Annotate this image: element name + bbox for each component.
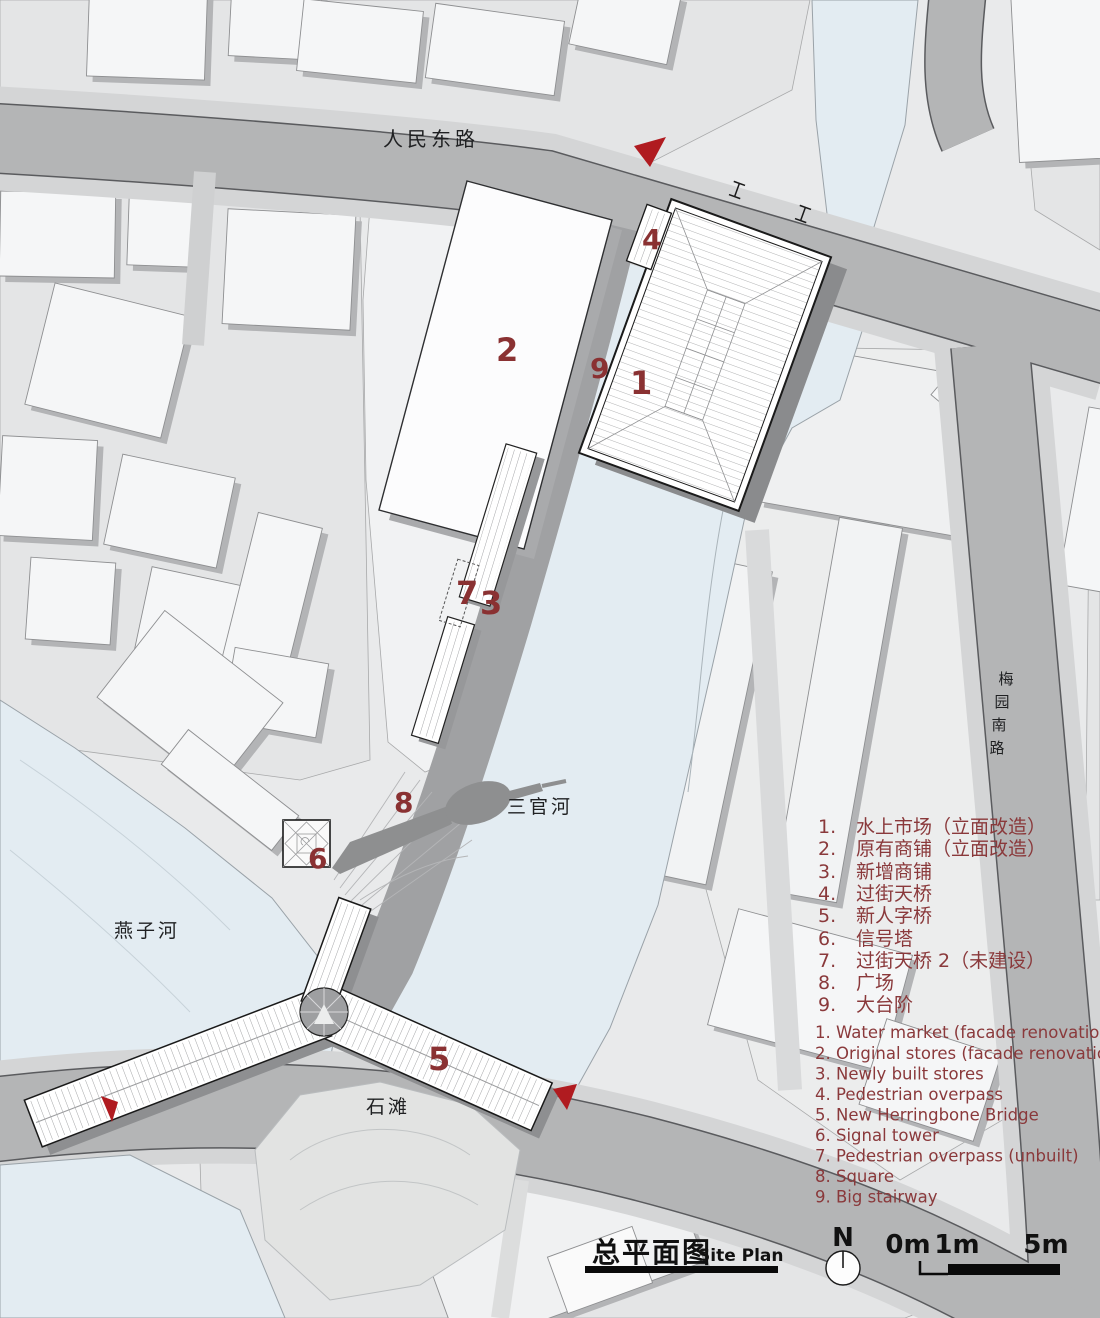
legend-en-item-1: 1. Water market (facade renovation) [815, 1023, 1100, 1042]
label-sanguan-river: 三官河 [507, 796, 573, 818]
marker-9: 9 [590, 352, 609, 385]
scale-1m: 1m [934, 1230, 979, 1260]
label-shitan: 石滩 [366, 1096, 410, 1118]
label-renmin-east-road: 人民东路 [383, 127, 479, 151]
legend-zh-num-5: 5. [818, 905, 836, 927]
marker-5: 5 [428, 1040, 450, 1078]
marker-1: 1 [630, 364, 652, 402]
svg-text:园: 园 [994, 693, 1009, 711]
legend-zh-item-9: 大台阶 [856, 994, 913, 1016]
bridge-hub [300, 988, 348, 1036]
svg-text:南: 南 [991, 716, 1006, 734]
legend-en-item-7: 7. Pedestrian overpass (unbuilt) [815, 1147, 1079, 1166]
site-plan-canvas: 1 2 3 4 5 6 7 8 9 人民东路 梅 园 南 路 三官河 燕子河 石… [0, 0, 1100, 1318]
legend-zh-item-6: 信号塔 [856, 928, 913, 950]
legend-zh-num-4: 4. [818, 883, 836, 905]
legend-zh-item-4: 过街天桥 [856, 883, 932, 905]
marker-7: 7 [456, 574, 478, 612]
title-en: Site Plan [698, 1246, 784, 1266]
title-zh: 总平面图 [592, 1236, 712, 1269]
marker-2: 2 [496, 331, 518, 369]
legend-zh-item-3: 新增商铺 [856, 861, 932, 883]
site-plan-drawing: 1 2 3 4 5 6 7 8 9 人民东路 梅 园 南 路 三官河 燕子河 石… [0, 0, 1100, 1318]
scale-bar-block [948, 1264, 1060, 1275]
legend-zh-item-5: 新人字桥 [856, 905, 932, 927]
title-underline [585, 1266, 778, 1273]
legend-zh-item-1: 水上市场（立面改造） [856, 816, 1046, 838]
legend-zh-num-1: 1. [818, 816, 836, 838]
svg-text:路: 路 [989, 739, 1004, 757]
marker-8: 8 [394, 786, 413, 819]
scale-5m: 5m [1023, 1230, 1068, 1260]
marker-6: 6 [308, 842, 327, 875]
legend-en-item-6: 6. Signal tower [815, 1126, 939, 1145]
legend-zh-item-2: 原有商铺（立面改造） [856, 838, 1046, 860]
legend-en-item-5: 5. New Herringbone Bridge [815, 1106, 1039, 1125]
legend-zh-item-8: 广场 [856, 972, 894, 994]
legend-en-item-8: 8. Square [815, 1167, 894, 1186]
label-yanzi-river: 燕子河 [114, 920, 180, 942]
north-label: N [832, 1223, 854, 1253]
legend-zh-num-3: 3. [818, 861, 836, 883]
legend-zh-num-8: 8. [818, 972, 836, 994]
marker-4: 4 [642, 223, 661, 256]
legend-zh-num-7: 7. [818, 950, 836, 972]
legend-zh-num-9: 9. [818, 994, 836, 1016]
svg-text:梅: 梅 [998, 670, 1013, 688]
marker-3: 3 [480, 584, 502, 622]
legend-en-item-9: 9. Big stairway [815, 1188, 938, 1207]
legend-zh-num-2: 2. [818, 838, 836, 860]
legend-zh-num-6: 6. [818, 928, 836, 950]
legend-en-item-3: 3. Newly built stores [815, 1065, 984, 1084]
legend-en-item-2: 2. Original stores (facade renovation) [815, 1044, 1100, 1063]
scale-0m: 0m [885, 1230, 930, 1260]
legend-zh-item-7: 过街天桥 2（未建设） [856, 950, 1045, 972]
legend-en-item-4: 4. Pedestrian overpass [815, 1085, 1003, 1104]
